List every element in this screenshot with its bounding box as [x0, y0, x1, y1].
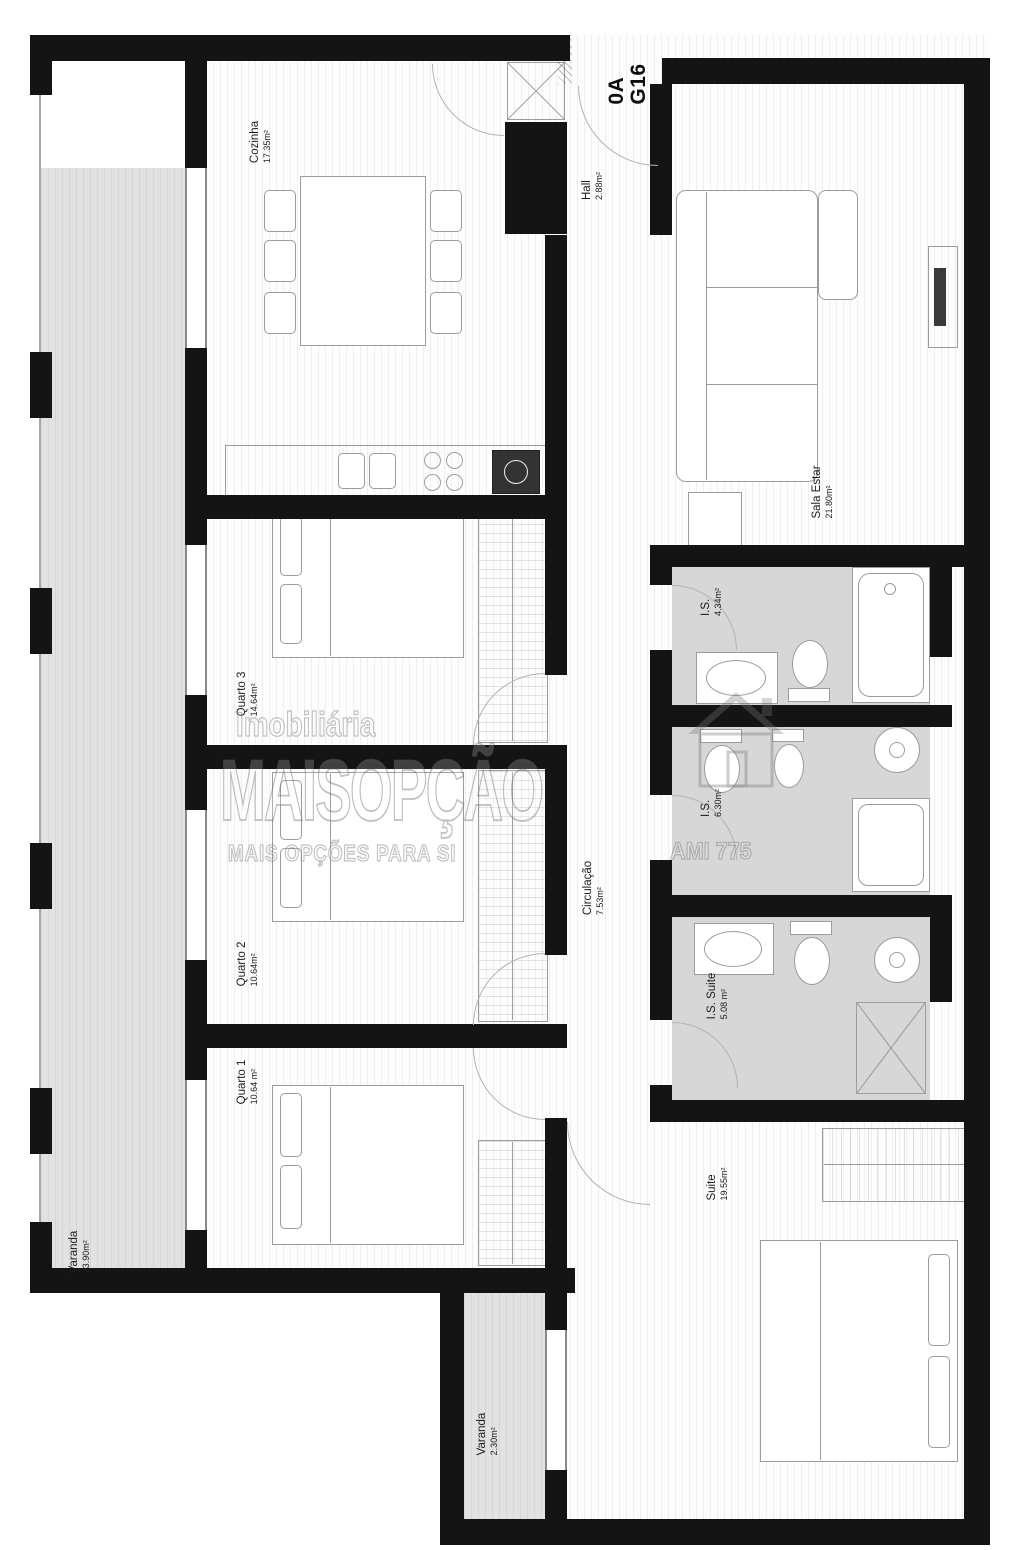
- sink-bowl: [338, 453, 365, 489]
- oven-dial: [504, 460, 528, 484]
- wall: [185, 745, 567, 769]
- wall: [930, 917, 952, 1002]
- unit-label: 0A G16: [606, 63, 650, 104]
- balcony-floor: [41, 168, 185, 1268]
- room-label-is-1: I.S. 4.34m²: [700, 588, 724, 616]
- wall: [650, 895, 952, 917]
- wardrobe: [478, 1140, 548, 1266]
- toilet-bowl: [792, 640, 828, 688]
- wall: [30, 1268, 575, 1293]
- wall: [30, 35, 570, 61]
- blanket-line: [330, 1087, 331, 1243]
- wall: [930, 567, 952, 657]
- wall: [545, 495, 567, 675]
- pillow: [280, 1165, 302, 1229]
- pillow: [280, 780, 302, 840]
- blanket-line: [330, 774, 331, 920]
- wall: [964, 58, 990, 1545]
- pillow: [280, 1093, 302, 1157]
- cooktop-burner: [446, 474, 463, 491]
- dining-table: [300, 176, 426, 346]
- pillow: [280, 516, 302, 576]
- sofa-cushion-line: [707, 384, 817, 385]
- wall: [650, 545, 990, 567]
- blanket-line: [330, 510, 331, 656]
- basin-drain: [889, 952, 905, 968]
- wall: [30, 352, 52, 418]
- pillow: [280, 848, 302, 908]
- unit-label-line1: 0A: [606, 77, 628, 105]
- wall: [650, 860, 672, 1020]
- toilet-tank: [790, 921, 832, 935]
- room-label-varanda-1: Varanda 23.90m²: [68, 1231, 92, 1274]
- exterior-area: [185, 1293, 440, 1550]
- sofa-back-line: [706, 192, 707, 480]
- chair: [430, 240, 462, 282]
- wall: [545, 235, 567, 495]
- bathtub-drain: [884, 583, 896, 595]
- room-label-quarto-3: Quarto 3 14.64m²: [236, 672, 260, 717]
- wall: [185, 1024, 567, 1048]
- wall: [650, 705, 952, 727]
- wardrobe-rail: [824, 1164, 982, 1165]
- wall: [30, 588, 52, 654]
- chair: [264, 240, 296, 282]
- side-table: [688, 492, 742, 546]
- balcony2-floor: [464, 1293, 545, 1519]
- chair: [264, 292, 296, 334]
- basin-drain: [889, 742, 905, 758]
- wall: [505, 122, 567, 234]
- sofa-cushion-line: [707, 287, 817, 288]
- wall: [185, 495, 567, 519]
- wall: [30, 35, 52, 95]
- wall: [30, 1222, 52, 1292]
- toilet-tank: [788, 688, 830, 702]
- room-label-quarto-2: Quarto 2 10.64m²: [236, 942, 260, 987]
- cooktop-burner: [424, 452, 441, 469]
- blanket-line: [820, 1242, 821, 1460]
- room-label-hall: Hall 2.88m²: [581, 172, 605, 200]
- wall: [545, 1118, 567, 1268]
- room-label-cozinha: Cozinha 17.35m²: [249, 121, 273, 163]
- room-label-is-2: I.S. 6.30m²: [700, 789, 724, 817]
- balcony-window: [185, 168, 207, 348]
- tv-icon: [934, 268, 946, 326]
- shower-box: [856, 1002, 926, 1094]
- bidet-bowl: [774, 744, 804, 788]
- balcony-window: [185, 545, 207, 695]
- chair: [430, 190, 462, 232]
- room-label-is-suite: I.S. Suite 5.08 m²: [706, 973, 730, 1020]
- basin-oval: [706, 660, 766, 696]
- chair: [264, 190, 296, 232]
- wall: [440, 1519, 990, 1545]
- sink-bowl: [369, 453, 396, 489]
- wall: [440, 1293, 464, 1545]
- unit-label-line2: G16: [628, 63, 650, 104]
- bidet-base: [772, 729, 804, 742]
- sofa-chaise: [818, 190, 858, 300]
- room-label-sala-estar: Sala Estar 21.80m²: [811, 465, 835, 518]
- room-label-varanda-2: Varanda 2.30m²: [476, 1413, 500, 1456]
- pillow: [928, 1356, 950, 1448]
- sofa: [676, 190, 818, 482]
- shower-inner: [858, 804, 924, 886]
- room-label-circulacao: Circulação 7.53m²: [582, 861, 606, 915]
- wall: [662, 58, 990, 84]
- pillow: [928, 1254, 950, 1346]
- kitchen-cabinet: [507, 62, 565, 120]
- entry-threshold: [558, 36, 572, 84]
- wall: [30, 843, 52, 909]
- pillow: [280, 584, 302, 644]
- cooktop-burner: [424, 474, 441, 491]
- basin-oval: [704, 931, 762, 967]
- wall: [30, 1088, 52, 1154]
- cooktop-burner: [446, 452, 463, 469]
- wall: [545, 745, 567, 955]
- suite-wardrobe: [822, 1128, 984, 1202]
- room-label-suite: Suite 19.55m²: [706, 1167, 730, 1200]
- toilet-tank: [700, 729, 742, 743]
- room-label-quarto-1: Quarto 1 10.64 m²: [236, 1060, 260, 1105]
- toilet-bowl: [794, 937, 830, 985]
- balcony-window: [185, 1080, 207, 1230]
- balcony-window: [545, 1330, 567, 1470]
- wall: [650, 1100, 990, 1122]
- floor-plan: 0A G16 Cozinha 17.35m² Hall 2.88m² Sala …: [0, 0, 1024, 1550]
- chair: [430, 292, 462, 334]
- toilet-bowl: [704, 745, 740, 793]
- balcony-window: [185, 810, 207, 960]
- wardrobe-rail: [512, 1142, 513, 1264]
